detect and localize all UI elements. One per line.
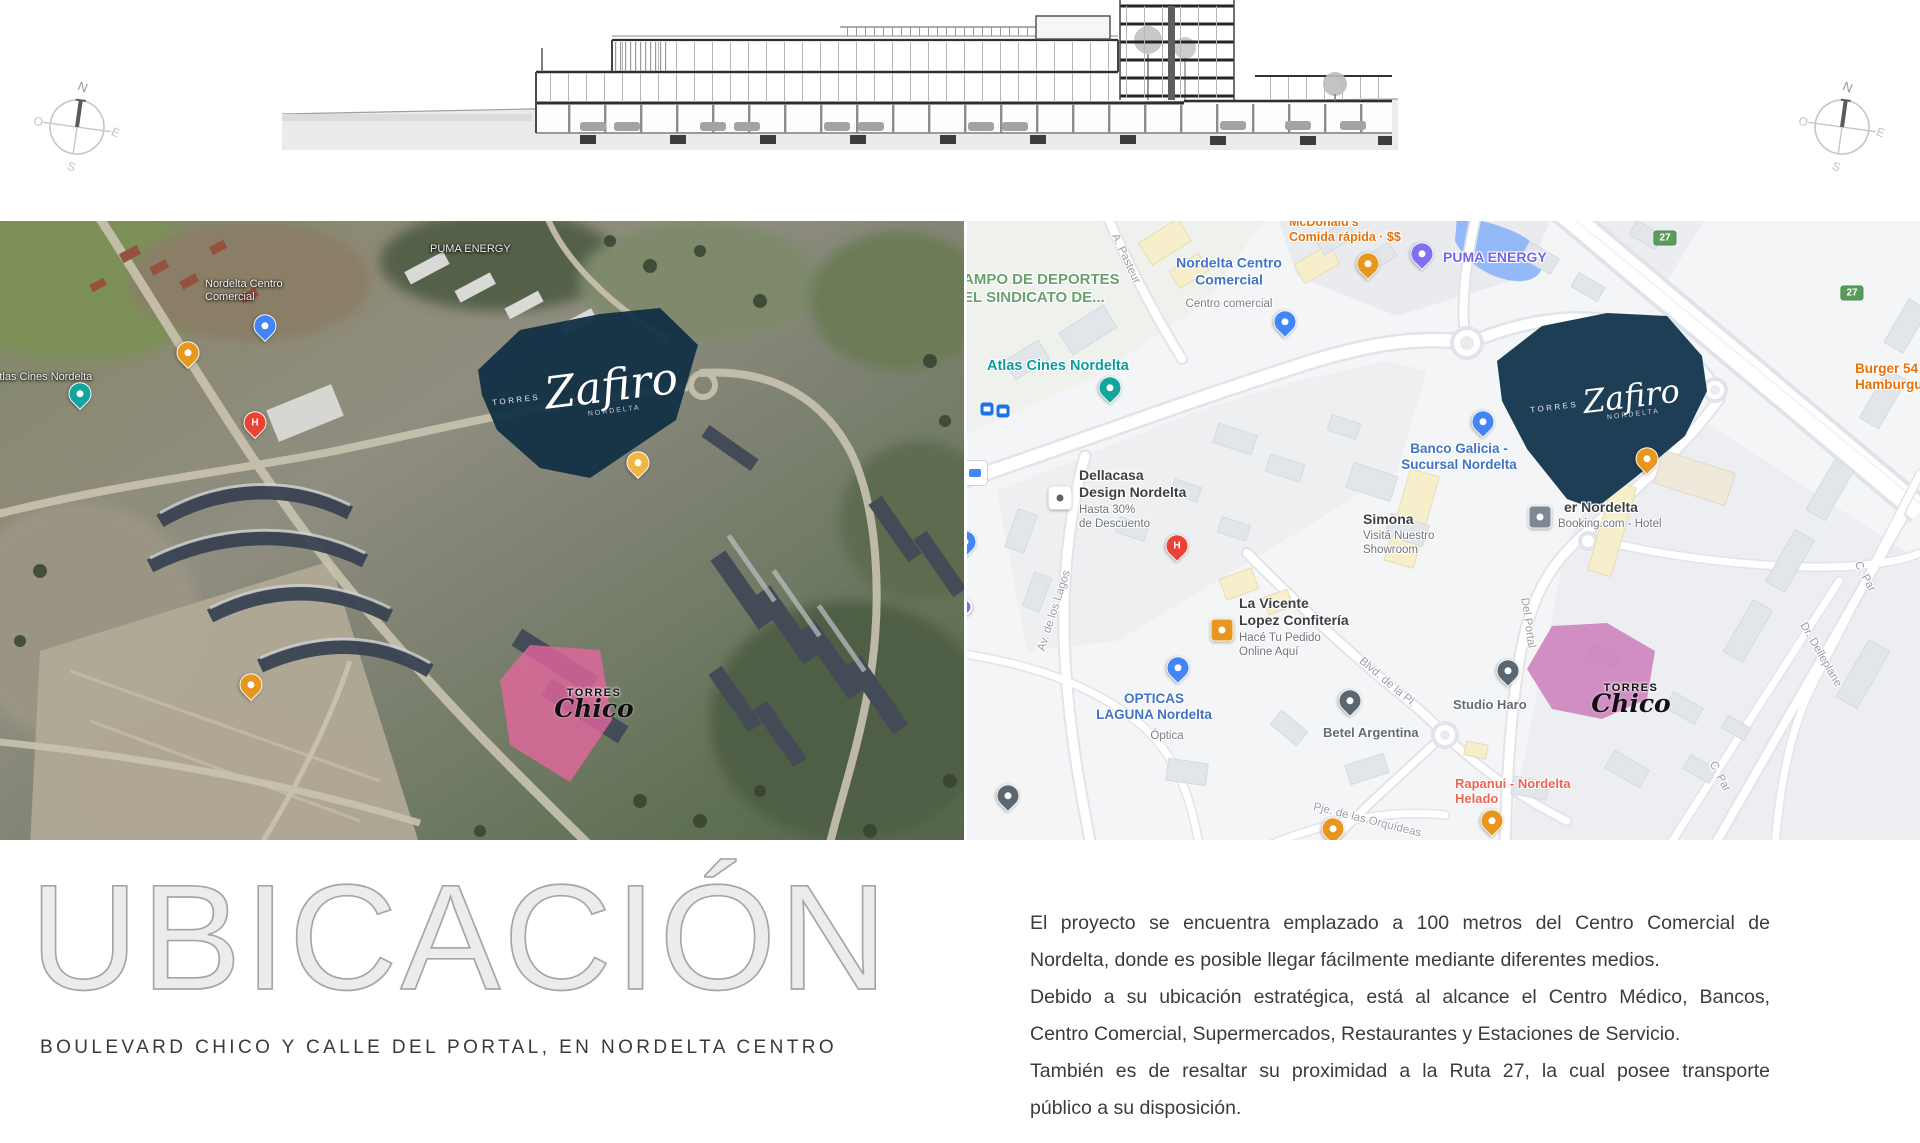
- page-title: UBICACIÓN: [30, 862, 890, 1012]
- compass-n: N: [76, 78, 90, 95]
- paragraph-line: También es de resaltar su proximidad a l…: [1030, 1053, 1770, 1090]
- compass-s: S: [65, 159, 78, 175]
- route-shield: 27: [1653, 231, 1676, 246]
- page-subtitle: BOULEVARD CHICO Y CALLE DEL PORTAL, EN N…: [40, 1037, 837, 1059]
- torres-logo-script: Chico: [1591, 694, 1670, 714]
- map-label: OPTICASLAGUNA Nordelta: [1096, 691, 1212, 723]
- satellite-map: TORRES Zafiro NORDELTA TORRES Chico Nord…: [0, 221, 964, 840]
- hotel-pin: [1529, 506, 1552, 529]
- compass-e: E: [1874, 124, 1887, 140]
- map-label: McDonald'sComida rápida · $$: [1289, 221, 1401, 245]
- torres-logo: TORRES Chico: [1591, 682, 1670, 714]
- street-map: TORRES Zafiro NORDELTA TORRES Chico AMPO…: [967, 221, 1920, 840]
- car-dealer-icon: [967, 460, 988, 486]
- map-label: Betel Argentina: [1323, 725, 1419, 740]
- map-label: Centro comercial: [1186, 298, 1273, 312]
- compass-o: O: [31, 113, 45, 129]
- zafiro-logo-pre: TORRES: [1530, 400, 1579, 415]
- torres-logo: TORRES Chico: [554, 687, 633, 719]
- paragraph-line: Centro Comercial, Supermercados, Restaur…: [1030, 1016, 1770, 1053]
- route-shield: 27: [1840, 286, 1863, 301]
- map-label: Hacé Tu PedidoOnline Aquí: [1239, 632, 1321, 659]
- location-paragraph: El proyecto se encuentra emplazado a 100…: [1030, 905, 1770, 1127]
- map-label: PUMA ENERGY: [430, 243, 511, 256]
- compass-o: O: [1796, 113, 1810, 129]
- bus-stop-icon: [997, 405, 1010, 418]
- architectural-section-drawing: [280, 0, 1400, 150]
- compass-rose: N E S O: [31, 73, 123, 177]
- map-label: AMPO DE DEPORTESEL SINDICATO DE...: [967, 271, 1120, 306]
- map-label: Visitá NuestroShowroom: [1363, 530, 1434, 557]
- bus-stop-icon: [981, 403, 994, 416]
- map-label: Banco Galicia -Sucursal Nordelta: [1401, 441, 1517, 473]
- compass-rose: N E S O: [1796, 73, 1888, 177]
- paragraph-line: Nordelta, donde es posible llegar fácilm…: [1030, 942, 1770, 979]
- slide-page: N E S O N E S O: [0, 0, 1920, 1143]
- torres-logo-script: Chico: [554, 699, 633, 719]
- paragraph-line: El proyecto se encuentra emplazado a 100…: [1030, 905, 1770, 942]
- map-label: Studio Haro: [1453, 697, 1527, 712]
- map-label: La VicenteLopez Confitería: [1239, 595, 1349, 628]
- map-label: Simona: [1363, 511, 1414, 528]
- compass-s: S: [1830, 159, 1843, 175]
- map-label: Booking.com - Hotel: [1558, 518, 1662, 532]
- map-label: Nordelta CentroComercial: [205, 278, 283, 304]
- store-pin: [1049, 487, 1072, 510]
- map-label: Óptica: [1150, 730, 1183, 744]
- map-label: er Nordelta: [1564, 499, 1638, 516]
- map-label: PUMA ENERGY: [1443, 249, 1547, 266]
- map-label: DellacasaDesign Nordelta: [1079, 467, 1186, 500]
- cafe-pin: [1211, 619, 1234, 642]
- map-label: Rapanui - NordeltaHelado: [1455, 776, 1571, 807]
- map-label: Burger 54Hamburguesa · $$: [1855, 361, 1920, 393]
- map-label: Atlas Cines Nordelta: [987, 358, 1129, 375]
- zafiro-logo-pre: TORRES: [492, 392, 541, 407]
- paragraph-line: Debido a su ubicación estratégica, está …: [1030, 979, 1770, 1016]
- paragraph-line: público a su disposición.: [1030, 1090, 1770, 1127]
- architectural-section-svg: [280, 0, 1400, 150]
- compass-n: N: [1841, 78, 1855, 95]
- satellite-imagery: [0, 221, 964, 840]
- map-label: Hasta 30%de Descuento: [1079, 504, 1150, 531]
- map-label: Nordelta CentroComercial: [1176, 254, 1282, 287]
- compass-e: E: [109, 124, 122, 140]
